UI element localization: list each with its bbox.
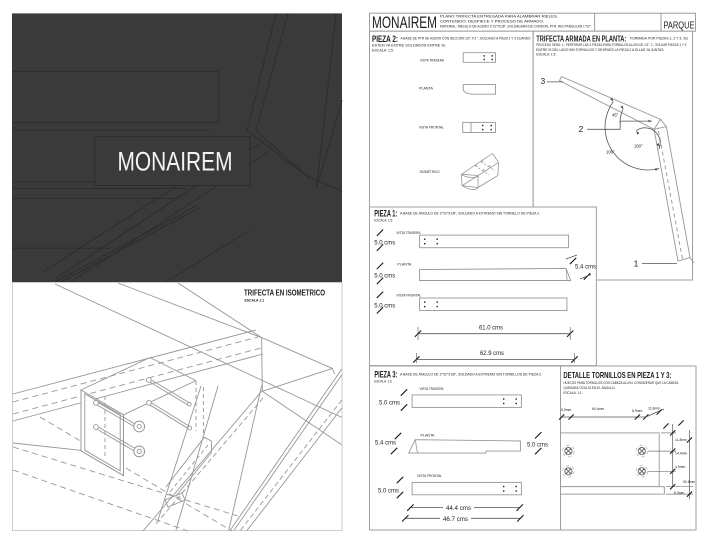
svg-text:4.9mm: 4.9mm [675,465,686,469]
svg-text:ESCALA: 1:5.: ESCALA: 1:5. [372,49,394,53]
svg-text:VISTA TRASERA: VISTA TRASERA [420,59,444,63]
svg-text:5.0 cms: 5.0 cms [378,489,399,495]
svg-text:MONAIREM: MONAIREM [372,14,437,32]
svg-text:5.0 cms: 5.0 cms [379,401,400,407]
svg-text:1: 1 [634,259,639,269]
svg-text:ESCALA: 1:5.: ESCALA: 1:5. [536,53,556,57]
svg-text:8.3mm: 8.3mm [674,491,685,495]
svg-text:2: 2 [579,124,584,134]
svg-text:100°: 100° [606,150,615,155]
svg-text:5.0 cms: 5.0 cms [374,241,395,247]
svg-text:8.9mm: 8.9mm [632,409,643,413]
svg-text:8.9mm: 8.9mm [561,408,572,412]
svg-text:61.0 cms: 61.0 cms [479,325,503,332]
svg-text:HUECOS PARA TORNILLOS CON CABE: HUECOS PARA TORNILLOS CON CABEZA ALLEN. … [563,381,679,385]
svg-text:11.8mm: 11.8mm [675,438,687,442]
svg-text:QUEDARÁ OCULTA EN EL ÁNGULO.: QUEDARÁ OCULTA EN EL ÁNGULO. [563,386,615,390]
svg-text:VISTA FRONTAL: VISTA FRONTAL [419,126,444,130]
svg-text:ESCALA: 1:5.: ESCALA: 1:5. [374,380,392,384]
svg-text:DETALLE TORNILLOS EN PIEZA 1 Y: DETALLE TORNILLOS EN PIEZA 1 Y 3: [563,370,671,380]
svg-text:45°: 45° [612,113,619,118]
svg-text:84.4mm: 84.4mm [592,407,604,411]
svg-text:A BASE DE PTR DE ACERO CON SEC: A BASE DE PTR DE ACERO CON SECCIÓN 1/2" … [401,36,532,41]
svg-text:PLANO TRIFECTA ENTREGADA PARA: PLANO TRIFECTA ENTREGADA PARA ALAMBRAR R… [440,15,558,19]
svg-text:VISTA TRASERA: VISTA TRASERA [420,387,444,391]
svg-text:160°: 160° [634,144,643,149]
svg-text:5.0 cms: 5.0 cms [374,304,395,310]
svg-text:A BASE DE ÁNGULO DE 2"X2"X1/8": A BASE DE ÁNGULO DE 2"X2"X1/8", SOLDADO … [400,212,540,216]
svg-text:50.8mm: 50.8mm [683,480,695,484]
svg-text:5.4 cms: 5.4 cms [375,441,396,447]
svg-text:TRIFECTA ARMADA EN PLANTA:: TRIFECTA ARMADA EN PLANTA: [536,34,626,44]
svg-text:5.4 cms: 5.4 cms [575,265,596,271]
svg-text:VISTA FRONTAL: VISTA FRONTAL [396,294,421,298]
svg-text:MATERIAL: ÁNGULO DE ACERO 2"X2: MATERIAL: ÁNGULO DE ACERO 2"X2"X1/8", SO… [440,25,592,29]
svg-text:PLANTA: PLANTA [421,434,435,438]
svg-text:3: 3 [541,76,546,86]
svg-text:PROCESO SERÁ: 1.- PERFORAR LAS: PROCESO SERÁ: 1.- PERFORAR LAS 3 PIEZAS … [536,43,686,47]
svg-text:44.4 cms: 44.4 cms [446,505,471,512]
svg-text:5.0 cms: 5.0 cms [374,274,395,280]
svg-text:46.7 cms: 46.7 cms [443,516,468,523]
svg-text:ESCALA: 1:5: ESCALA: 1:5 [374,219,392,223]
svg-text:FORMADA POR PIEZAS 1, 2 Y 3.: FORMADA POR PIEZAS 1, 2 Y 3. SU [630,37,689,41]
svg-text:PIEZA 3:: PIEZA 3: [374,370,397,380]
svg-text:ISOMÉTRICO: ISOMÉTRICO [420,169,440,174]
svg-text:CONTENIDO: DESPIECE Y PROCESO: CONTENIDO: DESPIECE Y PROCESO DE ARMADO. [440,20,544,24]
svg-text:VISTA TRASERA: VISTA TRASERA [396,231,420,235]
svg-text:62.9 cms: 62.9 cms [480,350,504,357]
svg-text:PLANTA: PLANTA [419,87,433,91]
svg-text:ESCALA 1:1: ESCALA 1:1 [245,299,265,303]
svg-text:VISTA FRONTAL: VISTA FRONTAL [417,474,442,478]
svg-text:5.0 cms: 5.0 cms [527,443,548,449]
svg-text:PLANTA: PLANTA [397,263,411,267]
svg-text:ESTEN YA ENTRE SOLDADOS ENTRE: ESTEN YA ENTRE SOLDADOS ENTRE SI. [372,44,446,48]
svg-text:PIEZA 1:: PIEZA 1: [374,209,397,219]
svg-text:MONAIREM: MONAIREM [118,147,233,177]
svg-text:TRIFECTA EN ISOMETRICO: TRIFECTA EN ISOMETRICO [244,288,325,298]
svg-text:PARQUE: PARQUE [664,20,695,32]
svg-text:14.4mm: 14.4mm [675,452,687,456]
svg-text:11.8mm: 11.8mm [648,407,660,411]
svg-text:ENTRE SI DEL LADO SIN TORNILLO: ENTRE SI DEL LADO SIN TORNILLOS Y DESPUÉ… [536,47,664,52]
svg-text:A BASE DE ÁNGULO DE 2"X2"X1/8": A BASE DE ÁNGULO DE 2"X2"X1/8", SOLDADO … [400,373,542,377]
svg-text:ESCALA: 1:1.: ESCALA: 1:1. [563,391,582,395]
